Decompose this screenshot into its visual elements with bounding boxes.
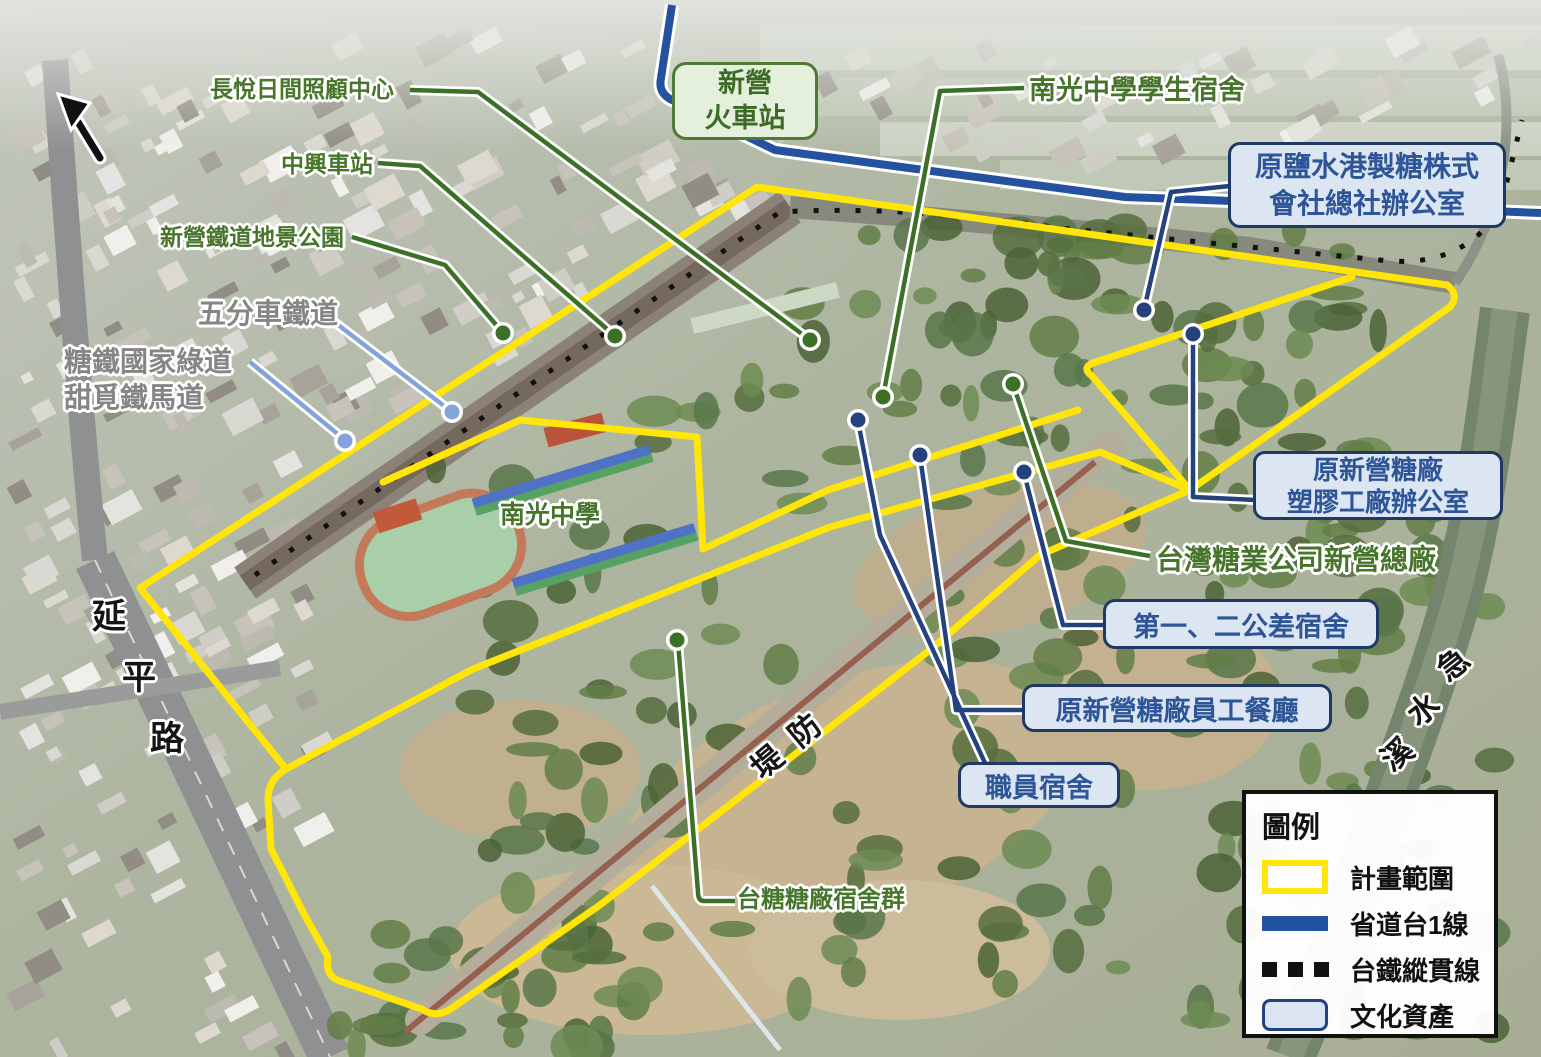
label-railway-landscape-park: 新營鐵道地景公園	[160, 224, 344, 252]
label-zhongxing-station: 中興車站	[281, 151, 373, 179]
staff-canteen-text: 原新營糖廠員工餐廳	[1056, 689, 1299, 728]
label-sugar-dorm-cluster: 台糖糖廠宿舍群	[737, 886, 905, 915]
legend-title: 圖例	[1262, 804, 1494, 846]
plastic-office-line1: 原新營糖廠	[1313, 454, 1443, 486]
label-sugar-greenway-line1: 糖鐵國家綠道	[64, 344, 232, 380]
label-wufenche-railway: 五分車鐵道	[198, 297, 338, 331]
provincial-route-swatch	[1262, 916, 1328, 931]
legend-label-route: 省道台1線	[1350, 905, 1468, 942]
plan-boundary-swatch	[1262, 860, 1328, 894]
plastic-office-line2: 塑膠工廠辦公室	[1287, 486, 1469, 518]
legend-item-cultural-asset: 文化資產	[1262, 1000, 1494, 1030]
station-box-line2: 火車站	[705, 101, 786, 136]
yanshuigang-line1: 原鹽水港製糖株式	[1255, 148, 1479, 185]
gongcha-dorm-text: 第一、二公差宿舍	[1133, 605, 1349, 644]
label-yanping-road-char1: 延	[92, 597, 126, 638]
cultural-asset-swatch	[1262, 999, 1328, 1031]
label-yanping-road-char3: 路	[150, 719, 184, 760]
legend-label-plan: 計畫範圍	[1350, 859, 1454, 896]
cultural-asset-box-staff-canteen: 原新營糖廠員工餐廳	[1022, 684, 1332, 732]
staff-dorm-text: 職員宿舍	[985, 766, 1093, 805]
yanshuigang-line2: 會社總社辦公室	[1269, 185, 1465, 222]
station-box-xinying: 新營 火車站	[672, 62, 818, 140]
legend-item-provincial-route: 省道台1線	[1262, 908, 1494, 938]
cultural-asset-box-gongcha-dorm: 第一、二公差宿舍	[1103, 599, 1379, 649]
cultural-asset-box-plastic-office: 原新營糖廠 塑膠工廠辦公室	[1253, 451, 1503, 520]
map-legend: 圖例 計畫範圍 省道台1線 台鐵縱貫線 文化資產	[1242, 790, 1498, 1038]
annotated-aerial-map: 長悅日間照顧中心 中興車站 新營鐵道地景公園 南光中學學生宿舍 台灣糖業公司新營…	[0, 0, 1541, 1057]
station-box-line1: 新營	[718, 66, 772, 101]
railway-swatch	[1262, 962, 1329, 977]
label-sugar-greenway: 糖鐵國家綠道 甜覓鐵馬道	[64, 344, 232, 417]
label-yanping-road-char2: 平	[122, 658, 156, 699]
label-nanguang-school: 南光中學	[500, 500, 600, 530]
legend-label-railway: 台鐵縱貫線	[1350, 951, 1480, 988]
legend-item-railway: 台鐵縱貫線	[1262, 954, 1494, 984]
label-sugar-greenway-line2: 甜覓鐵馬道	[64, 380, 232, 416]
label-changyue-daycare: 長悅日間照顧中心	[210, 76, 394, 104]
label-taisugar-headquarters: 台灣糖業公司新營總廠	[1156, 543, 1436, 577]
cultural-asset-box-staff-dorm: 職員宿舍	[958, 762, 1120, 808]
legend-item-plan-boundary: 計畫範圍	[1262, 862, 1494, 892]
legend-label-asset: 文化資產	[1350, 997, 1454, 1034]
label-nanguang-student-dorm: 南光中學學生宿舍	[1029, 74, 1245, 106]
cultural-asset-box-yanshuigang: 原鹽水港製糖株式 會社總社辦公室	[1228, 142, 1506, 228]
